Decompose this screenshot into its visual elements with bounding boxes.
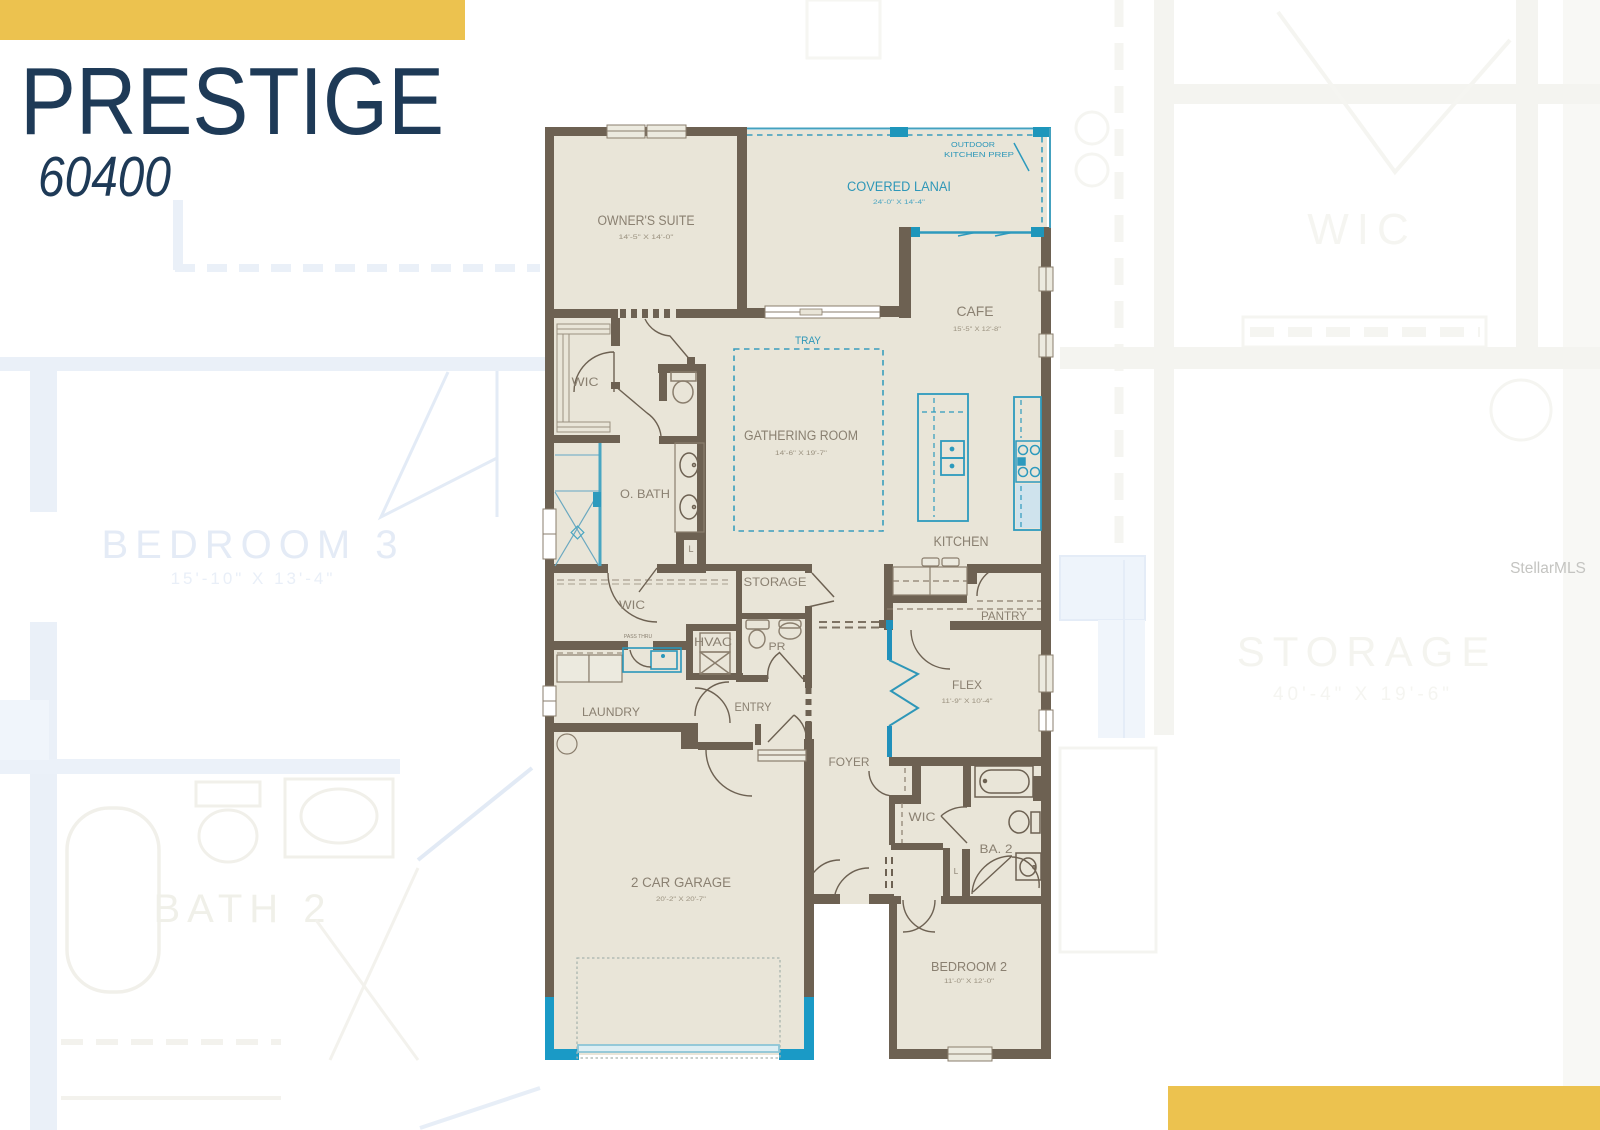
svg-text:LAUNDRY: LAUNDRY [582,705,640,719]
svg-text:14'-6" X 19'-7": 14'-6" X 19'-7" [775,450,828,457]
svg-text:HVAC: HVAC [694,635,732,649]
svg-text:O. BATH: O. BATH [620,487,670,501]
svg-text:STORAGE: STORAGE [744,575,807,589]
svg-text:FLEX: FLEX [952,678,982,692]
svg-text:BATH 2: BATH 2 [153,887,332,931]
svg-text:15'-5" X 12'-8": 15'-5" X 12'-8" [953,326,1002,333]
svg-text:L: L [688,544,693,554]
svg-text:40'-4" X 19'-6": 40'-4" X 19'-6" [1273,684,1453,705]
svg-text:24'-0" X 14'-4": 24'-0" X 14'-4" [873,199,926,206]
svg-text:CAFE: CAFE [957,303,994,319]
svg-text:2 CAR GARAGE: 2 CAR GARAGE [631,875,731,890]
svg-text:TRAY: TRAY [795,335,822,347]
svg-text:11'-9" X 10'-4": 11'-9" X 10'-4" [942,699,993,705]
svg-text:PRESTIGE: PRESTIGE [20,48,444,155]
svg-text:11'-0" X 12'-0": 11'-0" X 12'-0" [944,978,995,985]
svg-text:WIC: WIC [1307,205,1417,254]
svg-text:PASS THRU: PASS THRU [624,634,653,640]
svg-text:GATHERING ROOM: GATHERING ROOM [744,428,858,443]
svg-text:WIC: WIC [572,375,599,389]
svg-text:StellarMLS: StellarMLS [1510,560,1586,577]
svg-text:BEDROOM 2: BEDROOM 2 [931,959,1007,974]
svg-text:60400: 60400 [38,145,171,209]
svg-text:COVERED LANAI: COVERED LANAI [847,179,951,194]
svg-text:BA. 2: BA. 2 [980,844,1013,856]
svg-text:BEDROOM 3: BEDROOM 3 [101,523,404,567]
svg-text:KITCHEN: KITCHEN [934,534,989,549]
svg-text:L: L [954,867,959,876]
svg-text:ENTRY: ENTRY [735,700,772,714]
svg-text:WIC: WIC [619,598,645,612]
svg-text:WIC: WIC [909,810,936,824]
svg-text:15'-10" X 13'-4": 15'-10" X 13'-4" [171,569,336,588]
svg-text:20'-2" X 20'-7": 20'-2" X 20'-7" [656,896,707,903]
svg-text:STORAGE: STORAGE [1237,628,1498,675]
svg-text:PR: PR [769,641,786,653]
svg-text:OWNER'S SUITE: OWNER'S SUITE [598,213,695,228]
svg-text:OUTDOOR: OUTDOOR [951,140,996,149]
svg-text:FOYER: FOYER [829,755,870,769]
svg-text:14'-5" X 14'-0": 14'-5" X 14'-0" [619,234,675,241]
svg-text:PANTRY: PANTRY [981,609,1027,623]
svg-text:KITCHEN PREP: KITCHEN PREP [944,150,1014,159]
